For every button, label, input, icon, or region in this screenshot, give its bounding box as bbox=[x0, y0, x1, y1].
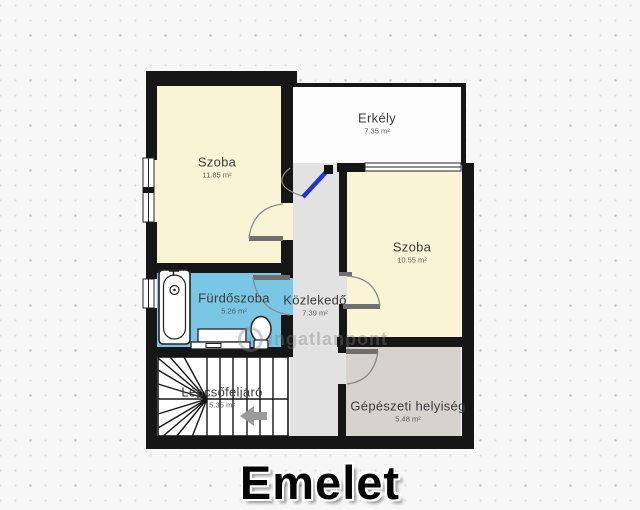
staircase bbox=[158, 357, 288, 437]
room-szoba-2 bbox=[347, 171, 461, 337]
room-kozlekedo bbox=[284, 163, 347, 436]
otp-logo-icon: otp bbox=[238, 327, 263, 352]
room-gepeszeti bbox=[346, 347, 461, 436]
window-szoba-1 bbox=[143, 158, 154, 222]
floorplan-page: Szoba 11.85 m² Erkély 7.35 m² Szoba 10.5… bbox=[0, 0, 640, 510]
window-furdoszoba bbox=[143, 279, 154, 308]
floorplan-drawing bbox=[0, 0, 640, 510]
watermark: otp ingatlanpont bbox=[238, 327, 388, 352]
window-erkely bbox=[365, 163, 461, 171]
floor-title: Emelet bbox=[0, 455, 640, 510]
bathtub-icon bbox=[159, 265, 190, 344]
room-erkely bbox=[293, 87, 462, 163]
watermark-text: ingatlanpont bbox=[268, 329, 388, 350]
